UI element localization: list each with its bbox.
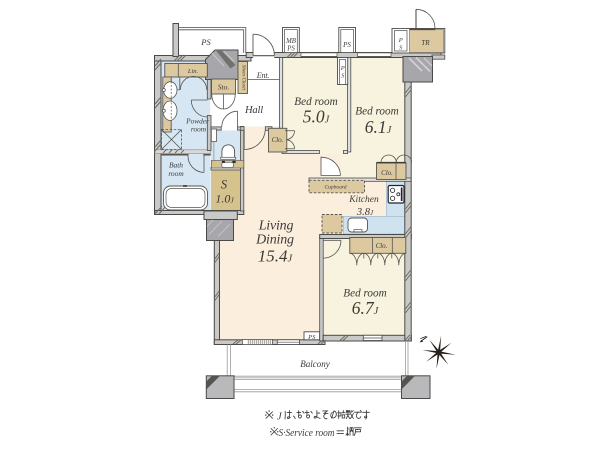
svg-text:PS: PS bbox=[286, 46, 295, 53]
svg-text:Hall: Hall bbox=[244, 105, 263, 116]
svg-text:Cupboard: Cupboard bbox=[324, 185, 346, 191]
svg-text:Clo.: Clo. bbox=[272, 136, 284, 144]
svg-text:S·Service room: S·Service room bbox=[279, 428, 335, 439]
svg-text:MB: MB bbox=[285, 38, 296, 45]
svg-text:P: P bbox=[398, 37, 403, 44]
svg-text:S: S bbox=[221, 178, 228, 192]
svg-text:Bed room: Bed room bbox=[355, 106, 398, 118]
svg-text:Ent.: Ent. bbox=[256, 71, 270, 80]
svg-text:room: room bbox=[191, 125, 206, 134]
svg-text:3.8J: 3.8J bbox=[356, 207, 374, 218]
svg-text:P: P bbox=[340, 65, 345, 72]
svg-text:Living: Living bbox=[258, 219, 294, 234]
svg-text:Kitchen: Kitchen bbox=[348, 195, 379, 205]
svg-text:TR: TR bbox=[421, 39, 430, 47]
svg-text:Clo.: Clo. bbox=[376, 242, 388, 250]
svg-text:Balcony: Balcony bbox=[300, 359, 330, 369]
svg-text:room: room bbox=[168, 169, 184, 178]
svg-text:Clo.: Clo. bbox=[381, 169, 393, 177]
svg-text:PS: PS bbox=[200, 37, 211, 47]
svg-text:Lin.: Lin. bbox=[187, 68, 199, 75]
svg-text:PS: PS bbox=[342, 41, 351, 49]
svg-text:PS: PS bbox=[307, 334, 316, 341]
svg-text:Shoes Closet: Shoes Closet bbox=[241, 65, 246, 91]
svg-text:Sto.: Sto. bbox=[218, 82, 230, 91]
svg-text:Dining: Dining bbox=[255, 233, 294, 248]
